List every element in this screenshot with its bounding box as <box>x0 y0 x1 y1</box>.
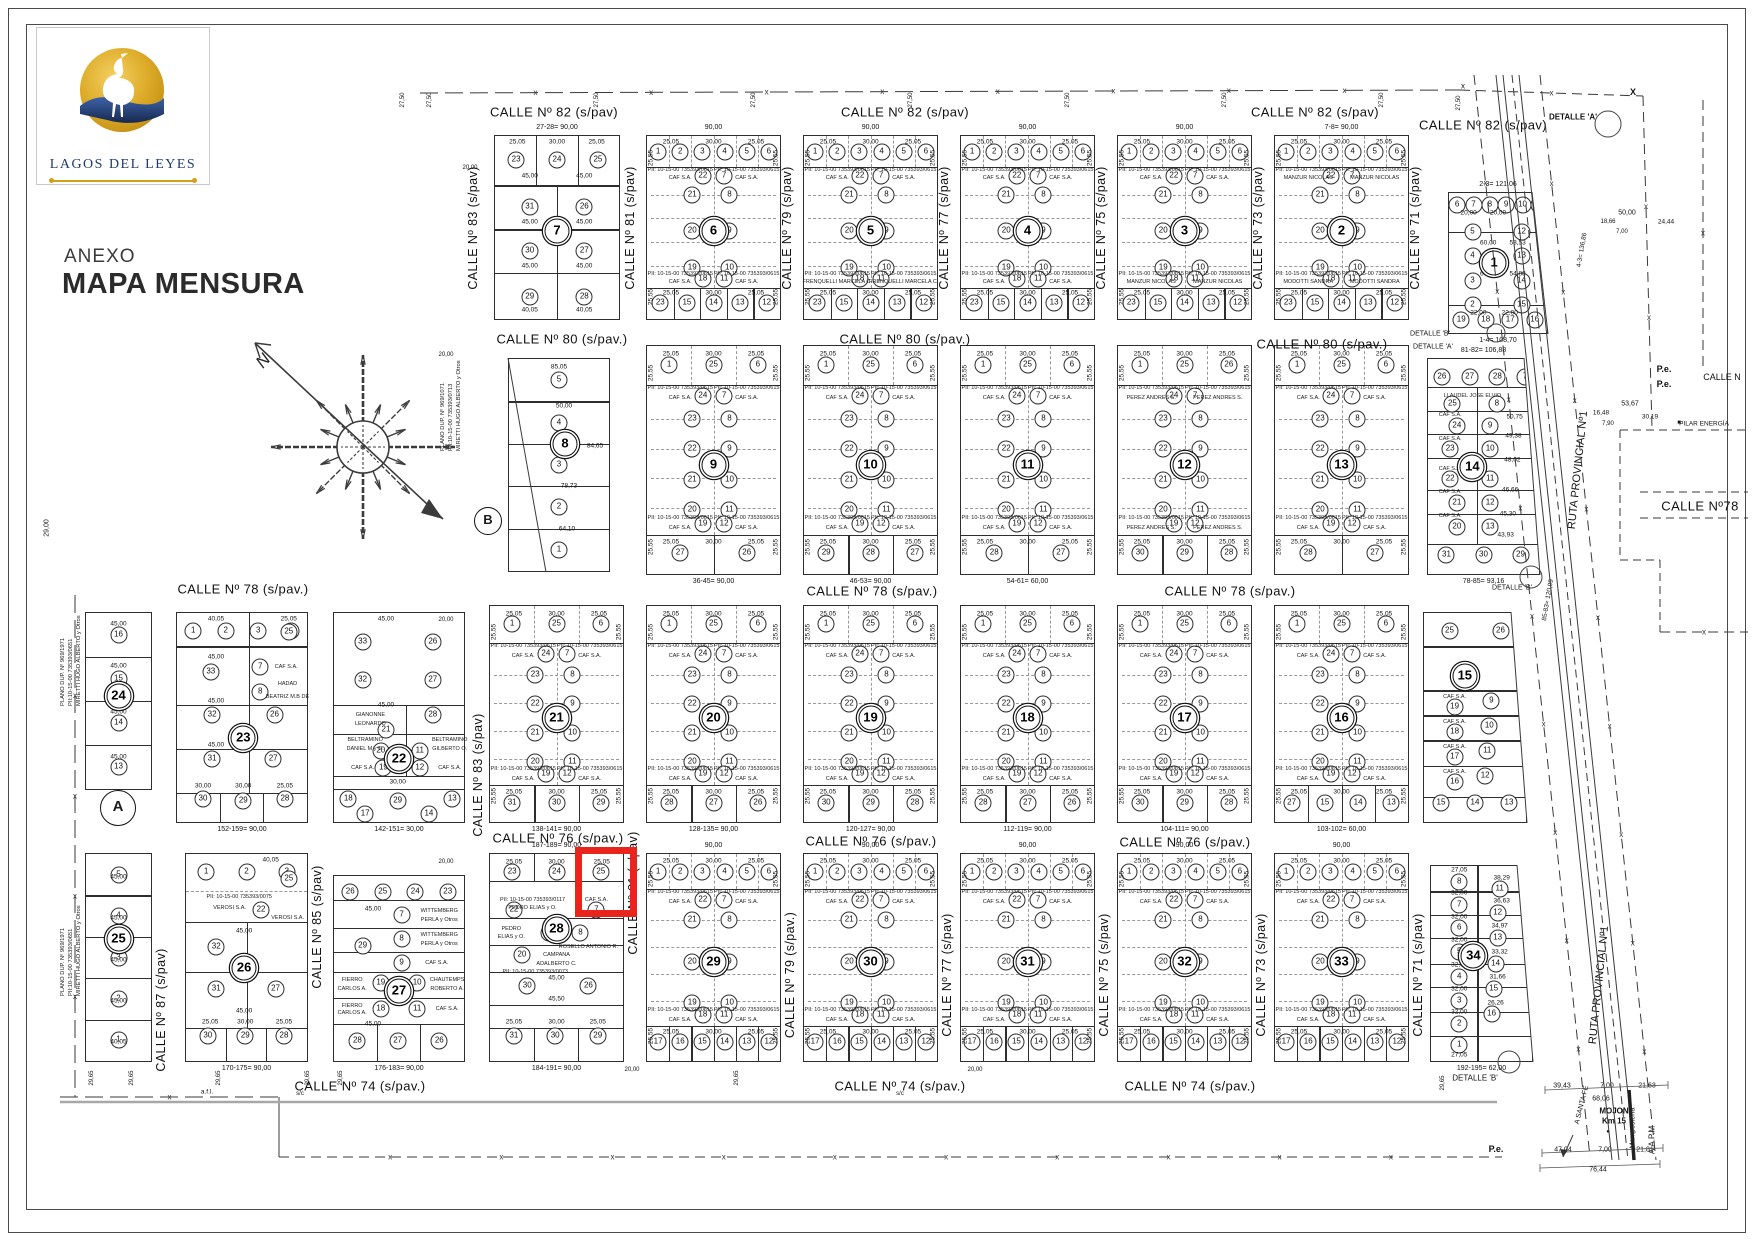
svg-text:x: x <box>1608 722 1612 731</box>
svg-text:x: x <box>73 691 77 700</box>
logo-title: LAGOS DEL LEYES <box>37 157 209 173</box>
block-number-7: 7 <box>545 219 570 244</box>
detail-callout-circle <box>1595 111 1621 137</box>
svg-text:x: x <box>1055 1153 1059 1162</box>
svg-text:x: x <box>1619 830 1623 839</box>
block-number-11: 11 <box>1015 452 1040 477</box>
svg-text:x: x <box>765 88 769 97</box>
block-number-21: 21 <box>544 706 569 731</box>
svg-text:x: x <box>833 1153 837 1162</box>
detail-callout-circle <box>1498 1051 1520 1073</box>
svg-text:x: x <box>944 1153 948 1162</box>
svg-text:x: x <box>1542 720 1546 729</box>
block-number-5: 5 <box>858 219 883 244</box>
block-number-13: 13 <box>1329 452 1354 477</box>
svg-text:x: x <box>1573 396 1577 405</box>
svg-text:x: x <box>1642 1047 1646 1056</box>
block-number-26: 26 <box>232 955 257 980</box>
svg-text:x: x <box>1702 628 1706 637</box>
block-number-27: 27 <box>387 978 412 1003</box>
svg-text:x: x <box>1644 202 1648 211</box>
svg-text:x: x <box>1111 87 1115 96</box>
svg-text:x: x <box>73 992 77 1001</box>
svg-text:x: x <box>1278 1153 1282 1162</box>
survey-map-page: { "page":{"line":"#3a3a3a","accent_red":… <box>0 0 1754 1241</box>
svg-text:x: x <box>1342 86 1346 95</box>
svg-text:x: x <box>168 1093 172 1102</box>
block-number-24: 24 <box>106 683 131 708</box>
block-number-31: 31 <box>1015 949 1040 974</box>
block-number-32: 32 <box>1172 949 1197 974</box>
block-number-12: 12 <box>1172 452 1197 477</box>
svg-text:x: x <box>1389 1153 1393 1162</box>
svg-text:x: x <box>73 791 77 800</box>
reference-marker-B: B <box>474 507 502 535</box>
svg-text:x: x <box>611 1153 615 1162</box>
block-number-3: 3 <box>1172 219 1197 244</box>
block-number-25: 25 <box>106 926 131 951</box>
svg-text:x: x <box>1550 179 1554 188</box>
boundary-and-route-layer: xxxxxxxxxxxxxxxxxxxxxxxxxxxxxxxxxxxxxxxx… <box>0 0 1754 1241</box>
svg-text:x: x <box>1553 828 1557 837</box>
block-number-6: 6 <box>701 219 726 244</box>
svg-text:x: x <box>1484 179 1488 188</box>
block-number-18: 18 <box>1015 706 1040 731</box>
block-number-10: 10 <box>858 452 883 477</box>
block-number-33: 33 <box>1329 949 1354 974</box>
detail-callout-circle <box>1487 324 1505 342</box>
block-number-29: 29 <box>701 949 726 974</box>
svg-text:x: x <box>880 87 884 96</box>
block-number-20: 20 <box>701 706 726 731</box>
svg-text:x: x <box>1495 287 1499 296</box>
logo-emblem <box>37 28 207 148</box>
svg-text:x: x <box>722 1153 726 1162</box>
svg-text:x: x <box>73 892 77 901</box>
svg-text:x: x <box>1565 936 1569 945</box>
block-number-8: 8 <box>553 431 578 456</box>
svg-text:x: x <box>1596 613 1600 622</box>
svg-text:x: x <box>996 87 1000 96</box>
block-number-19: 19 <box>858 706 883 731</box>
block-number-23: 23 <box>231 726 256 751</box>
block-number-4: 4 <box>1015 219 1040 244</box>
svg-text:x: x <box>1584 505 1588 514</box>
svg-text:x: x <box>534 88 538 97</box>
logo-rule <box>51 179 195 182</box>
svg-text:x: x <box>388 1153 392 1162</box>
svg-text:x: x <box>1701 229 1705 238</box>
svg-text:x: x <box>649 88 653 97</box>
svg-text:x: x <box>1518 503 1522 512</box>
north-label: N <box>252 349 275 371</box>
svg-text:x: x <box>1576 1044 1580 1053</box>
svg-text:x: x <box>1631 939 1635 948</box>
block-number-22: 22 <box>387 747 412 772</box>
svg-text:x: x <box>1166 1153 1170 1162</box>
svg-text:x: x <box>499 1153 503 1162</box>
block-number-2: 2 <box>1329 219 1354 244</box>
svg-text:x: x <box>1507 395 1511 404</box>
svg-text:x: x <box>1561 288 1565 297</box>
svg-text:x: x <box>1530 612 1534 621</box>
block-number-9: 9 <box>701 452 726 477</box>
highlighted-lot-25[interactable] <box>575 847 637 917</box>
svg-text:x: x <box>1227 86 1231 95</box>
logo-card: LAGOS DEL LEYES <box>36 27 210 185</box>
detail-callout-circle <box>1520 566 1542 588</box>
block-number-16: 16 <box>1329 706 1354 731</box>
block-number-28: 28 <box>544 916 569 941</box>
block-number-30: 30 <box>858 949 883 974</box>
svg-text:x: x <box>1647 313 1651 322</box>
svg-text:x: x <box>1550 89 1554 98</box>
reference-marker-A: A <box>100 790 136 826</box>
block-number-17: 17 <box>1172 706 1197 731</box>
compass-rose: N <box>243 327 503 577</box>
